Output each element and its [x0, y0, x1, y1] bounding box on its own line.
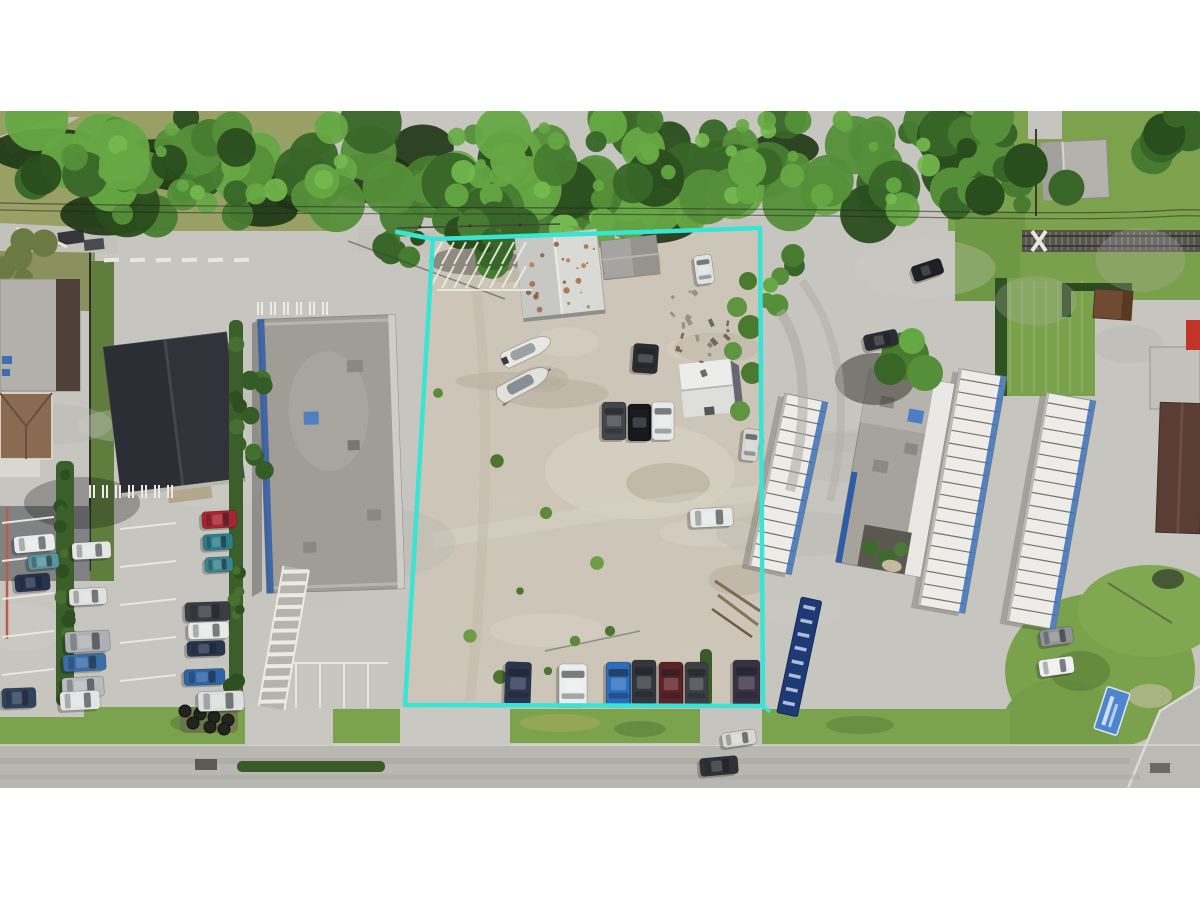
vehicle	[599, 402, 626, 442]
grass-verge	[333, 709, 403, 743]
rooftop-unit	[367, 509, 381, 520]
storm-drain	[195, 759, 217, 770]
vehicle	[737, 428, 760, 464]
vehicle	[629, 343, 659, 376]
vehicle	[181, 668, 226, 688]
vehicle	[649, 402, 674, 442]
main-white-metal-roof-building	[515, 229, 605, 322]
driveway-apron	[400, 707, 510, 745]
vehicle	[603, 662, 631, 708]
white-canopy	[0, 459, 40, 477]
vehicle	[690, 254, 715, 288]
vehicle	[556, 664, 587, 708]
rooftop-unit	[347, 360, 363, 373]
vehicle	[682, 662, 708, 708]
letterbox-bottom	[0, 788, 1200, 900]
vehicle	[687, 507, 734, 530]
rooftop-unit	[907, 409, 924, 424]
vehicle	[730, 660, 760, 708]
vehicle	[696, 755, 739, 778]
rooftop-unit	[872, 459, 889, 473]
vehicle	[199, 510, 238, 531]
brown-shed	[1093, 289, 1133, 321]
vehicle	[656, 662, 683, 708]
driveway-top-right	[1028, 111, 1062, 139]
vehicle	[185, 621, 230, 642]
vehicle	[200, 533, 234, 553]
dark-gable-roof-building	[103, 332, 246, 509]
vehicle	[61, 630, 110, 655]
vehicle-top-road	[84, 238, 105, 251]
hedge-median	[237, 761, 385, 772]
screenshot-root: Aerial drone photograph of a commercial …	[0, 0, 1200, 900]
letterbox-top	[0, 0, 1200, 111]
vehicle	[10, 533, 55, 556]
vehicle	[629, 660, 656, 707]
vehicle	[24, 553, 59, 573]
vehicle	[195, 690, 245, 714]
secondary-gray-roof-building	[600, 235, 660, 280]
rooftop-unit	[304, 411, 319, 425]
aerial-photo: Aerial drone photograph of a commercial …	[0, 111, 1200, 788]
rooftop-unit	[348, 440, 360, 450]
vehicle	[11, 573, 50, 595]
rooftop-unit	[904, 442, 919, 455]
driveway-apron	[245, 707, 333, 745]
storm-drain	[1150, 763, 1170, 773]
gray-roof-building-brown-edge	[0, 279, 80, 391]
vehicle	[182, 601, 231, 624]
vehicle	[66, 587, 108, 608]
vehicle	[69, 541, 112, 562]
vehicle	[625, 404, 651, 443]
red-awning	[1186, 320, 1200, 350]
vehicle	[184, 640, 226, 658]
vehicle	[0, 687, 36, 710]
vehicle	[57, 690, 101, 713]
vehicle	[202, 556, 234, 575]
entry-walk	[300, 592, 344, 608]
large-gray-flat-roof-building	[257, 315, 404, 594]
vehicle	[60, 653, 107, 674]
palm-shadow	[1152, 569, 1184, 589]
vehicle	[501, 661, 532, 707]
rooftop-unit	[303, 542, 316, 553]
